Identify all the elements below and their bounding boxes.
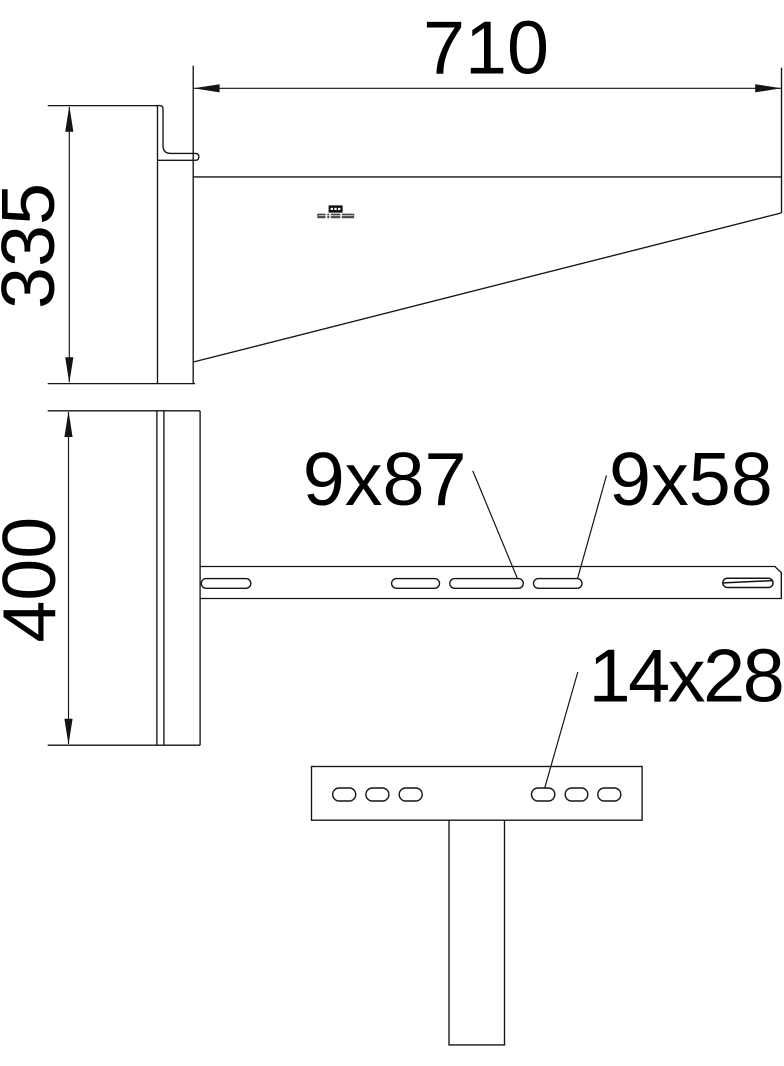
svg-text:710: 710 xyxy=(423,5,549,89)
svg-text:14x28: 14x28 xyxy=(589,634,783,718)
svg-text:335: 335 xyxy=(0,183,70,309)
svg-text:9x87: 9x87 xyxy=(303,437,467,521)
svg-text:400: 400 xyxy=(0,517,71,643)
svg-text:9x58: 9x58 xyxy=(609,437,773,521)
